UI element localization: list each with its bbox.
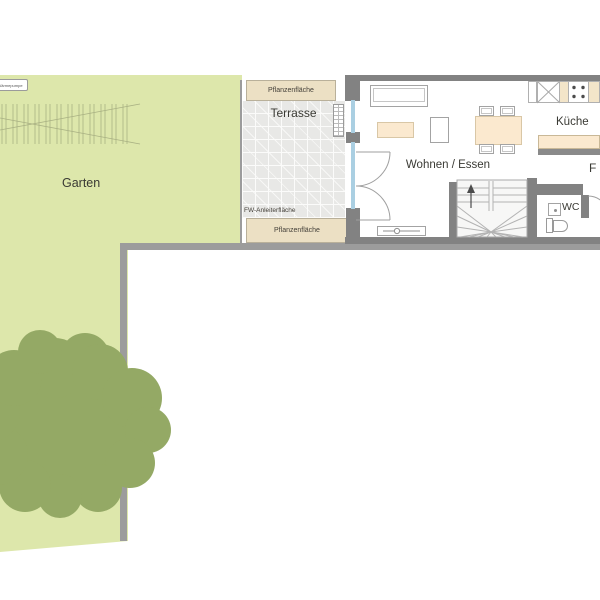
chair-seat-line <box>502 146 513 152</box>
wc-sink <box>548 203 561 216</box>
trellis-pattern <box>0 104 140 144</box>
exterior-wall-bottom <box>345 237 600 244</box>
radiator <box>377 226 426 236</box>
sofa-backrest-line <box>373 88 425 102</box>
exterior-wall-corner-tl <box>345 75 360 101</box>
dining-chair <box>479 106 494 116</box>
heat-pump-label-text: Wärmepumpe <box>0 83 23 88</box>
chair-seat-line <box>481 146 492 152</box>
chair-seat-line <box>502 108 513 114</box>
ladder-symbol <box>333 104 344 137</box>
kitchen-cabinet <box>528 81 537 103</box>
chair-seat-line <box>481 108 492 114</box>
stair-wall-right <box>527 178 537 243</box>
kitchen-sink <box>537 81 560 103</box>
coffee-table <box>377 122 414 138</box>
hall-label-partial: F <box>589 161 596 175</box>
toilet-tank <box>546 218 553 233</box>
plant-bed-top: Pflanzenfläche <box>246 80 336 101</box>
window-glazing-upper <box>351 100 355 133</box>
toilet-bowl <box>553 220 568 232</box>
plant-bed-top-label: Pflanzenfläche <box>268 87 314 94</box>
floor-plan: Wärmepumpe Pflanzenfläche Terrasse FW-An… <box>0 0 600 600</box>
terrace-label: Terrasse <box>242 106 345 120</box>
kitchen-island-edge <box>538 149 600 155</box>
sofa <box>370 85 428 107</box>
wc-label: WC <box>562 201 580 213</box>
fw-ladder-area-label: FW-Anleiterfläche <box>244 207 296 214</box>
dining-table <box>475 116 522 145</box>
plant-bed-bottom-label: Pflanzenfläche <box>274 227 320 234</box>
wc-sink-drain <box>554 209 557 212</box>
heat-pump-label: Wärmepumpe <box>0 79 28 91</box>
wc-wall-right <box>581 195 589 218</box>
plant-bed-bottom: Pflanzenfläche <box>246 218 348 243</box>
stair-wall-left <box>449 182 457 237</box>
terrace-door-glazing <box>351 142 355 209</box>
living-dining-label: Wohnen / Essen <box>388 159 508 171</box>
garden-label: Garten <box>62 176 100 190</box>
armchair <box>430 117 449 143</box>
kitchen-island <box>538 135 600 149</box>
stove <box>568 81 589 103</box>
dining-chair <box>500 144 515 154</box>
wc-wall-top <box>537 184 583 195</box>
dining-chair <box>500 106 515 116</box>
boundary-fence-horizontal <box>120 243 600 250</box>
dining-chair <box>479 144 494 154</box>
tree <box>0 330 171 518</box>
kitchen-label: Küche <box>556 116 589 128</box>
